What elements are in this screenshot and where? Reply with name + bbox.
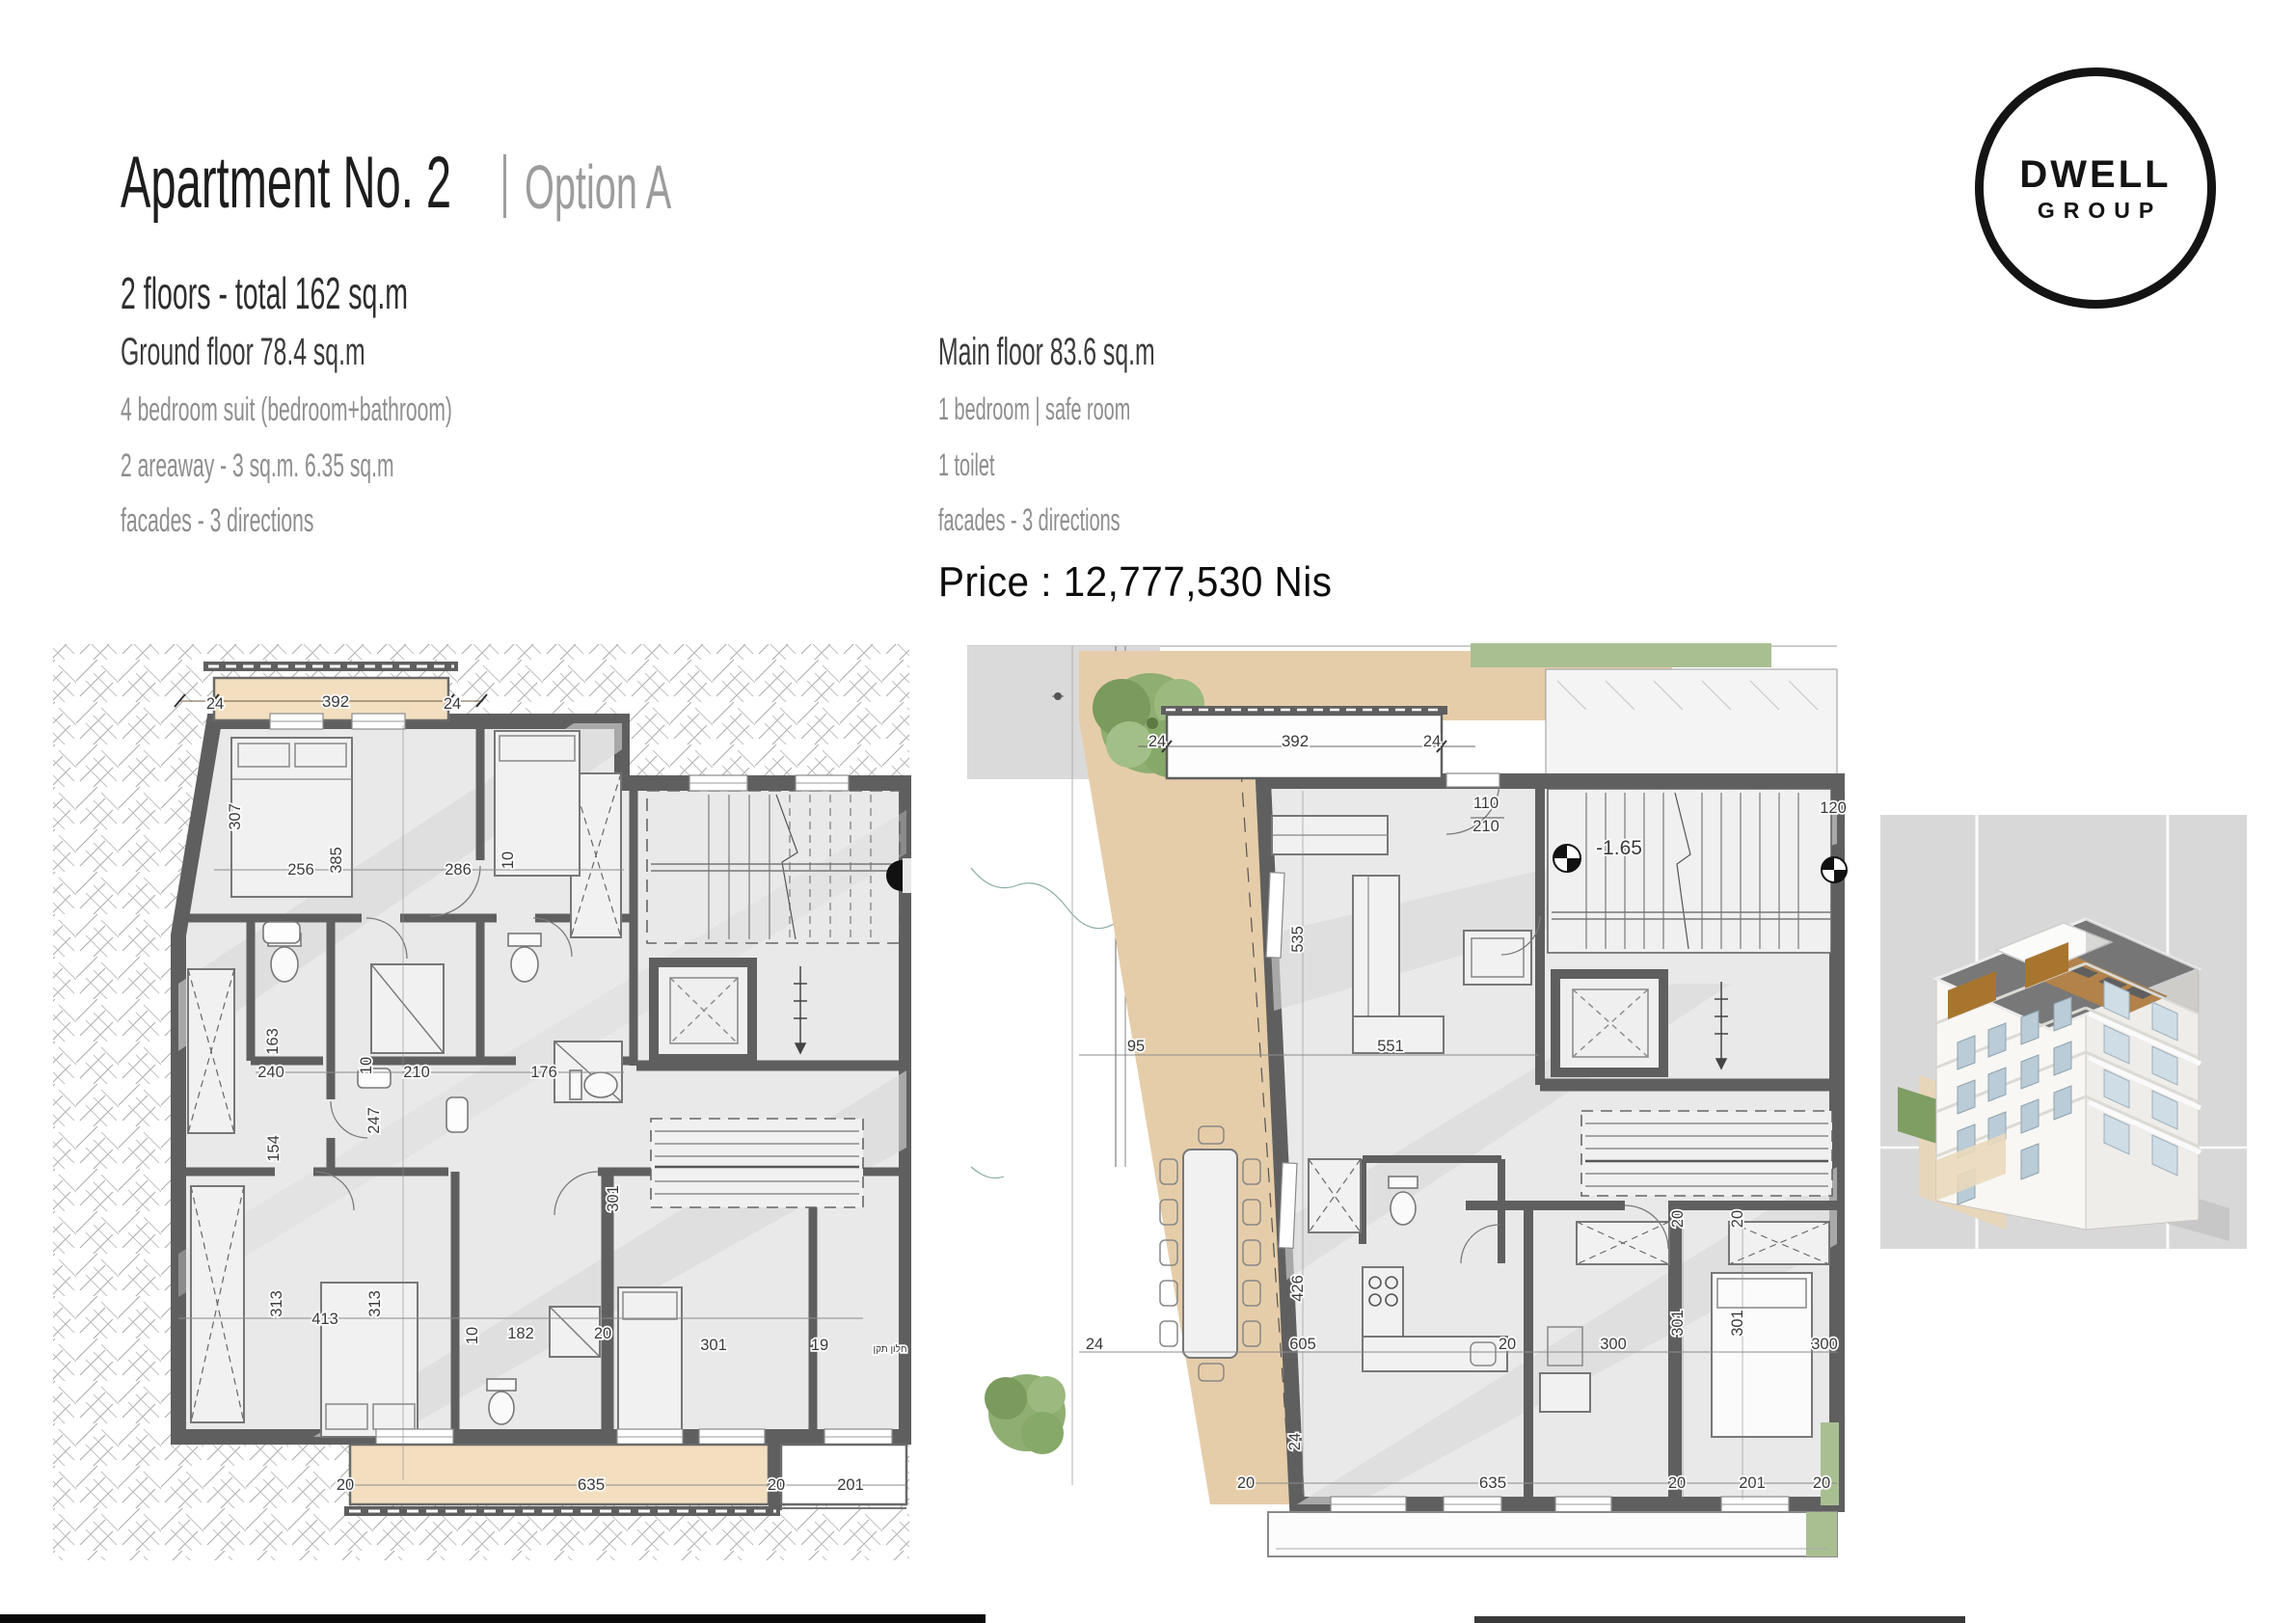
- dimension-label: 385: [328, 847, 345, 874]
- dimension-label: 551: [1377, 1038, 1404, 1055]
- dimension-label: 24: [1086, 1336, 1103, 1353]
- terrace-bottom: [1268, 1512, 1837, 1556]
- dimension-label: 120: [1820, 799, 1847, 817]
- dwell-group-logo: DWELL GROUP: [1975, 68, 2216, 309]
- dimension-label: 24: [1423, 733, 1441, 750]
- building-3d-render: [1880, 815, 2247, 1249]
- ground-floor-line: facades - 3 directions: [121, 504, 432, 537]
- footer-bar-left: [0, 1614, 986, 1623]
- tree-small: [985, 1374, 1066, 1454]
- dimension-label: 182: [507, 1325, 534, 1342]
- dimension-label: 24: [1286, 1433, 1304, 1450]
- dimension-label: -1.65: [1596, 837, 1642, 859]
- ground-floor-line: 2 areaway - 3 sq.m. 6.35 sq.m: [121, 449, 561, 482]
- level-marker: [1553, 845, 1580, 872]
- dimension-label: 605: [1289, 1336, 1316, 1353]
- dimension-label: 240: [257, 1064, 284, 1081]
- dimension-label: 110: [1473, 795, 1499, 812]
- dimension-label: 24: [1148, 733, 1166, 750]
- dimension-label: 426: [1289, 1275, 1307, 1302]
- dimension-label: 20: [1668, 1474, 1686, 1492]
- ground-floor-title: Ground floor 78.4 sq.m: [121, 333, 515, 371]
- dimension-label: 20: [1669, 1210, 1687, 1228]
- main-floor-line: 1 toilet: [938, 449, 1029, 480]
- title-divider: [503, 154, 506, 218]
- main-floor-line: 1 bedroom | safe room: [938, 393, 1248, 424]
- dimension-label: 313: [268, 1290, 285, 1317]
- dimension-label: 256: [287, 861, 314, 879]
- dimension-label: 392: [1282, 732, 1309, 750]
- dimension-label: 20: [1499, 1336, 1516, 1353]
- dimension-label: 24: [444, 695, 461, 713]
- dimension-label: 10: [358, 1057, 375, 1074]
- dimension-label: 20: [1729, 1210, 1746, 1228]
- logo-text-dwell: DWELL: [2019, 155, 2171, 194]
- dimension-label: 300: [1811, 1336, 1838, 1353]
- dimension-label: 201: [837, 1476, 864, 1494]
- dimension-label: 20: [1813, 1474, 1830, 1492]
- dimension-label: 154: [265, 1135, 283, 1162]
- dimension-label: 176: [530, 1064, 557, 1081]
- staircase-lower: [651, 1119, 863, 1207]
- brochure-page: { "header": { "title": "Apartment No. 2"…: [0, 0, 2296, 1623]
- dimension-label: 413: [311, 1311, 338, 1328]
- dimension-label: 301: [700, 1337, 727, 1354]
- dimension-label: 210: [403, 1064, 430, 1081]
- dimension-label: 20: [1237, 1474, 1255, 1492]
- grass-strip-right: [1821, 1422, 1839, 1505]
- summary-line: 2 floors - total 162 sq.m: [121, 271, 584, 315]
- dimension-label: 10: [464, 1327, 481, 1344]
- grass-strip-top: [1471, 643, 1771, 667]
- dimension-label: 307: [227, 803, 244, 830]
- dimension-label: 313: [366, 1290, 384, 1317]
- dimension-label: 635: [578, 1475, 605, 1494]
- dimension-label: 20: [594, 1325, 611, 1342]
- footer-bar-right: [1474, 1616, 1965, 1623]
- render-building: [1936, 919, 2201, 1230]
- price-line: Price : 12,777,530 Nis: [938, 561, 1366, 604]
- elevator: [1555, 974, 1663, 1072]
- main-floor-line: facades - 3 directions: [938, 504, 1231, 535]
- dimension-label: 300: [1600, 1336, 1627, 1353]
- ground-floor-line: 4 bedroom suit (bedroom+bathroom): [121, 393, 656, 426]
- staircase: [1548, 789, 1847, 953]
- apartment-title: Apartment No. 2: [121, 147, 451, 220]
- dimension-label: 19: [811, 1337, 828, 1354]
- dimension-label: 535: [1289, 926, 1307, 953]
- dimension-label: 247: [365, 1107, 383, 1134]
- dimension-label: 24: [206, 695, 224, 713]
- logo-text-group: GROUP: [2029, 200, 2162, 222]
- dimension-label: 635: [1479, 1474, 1506, 1492]
- dimension-label: 301: [1669, 1310, 1687, 1337]
- dimension-label: חלון תקן: [873, 1343, 906, 1355]
- upper-terrace: [1546, 669, 1837, 777]
- dimension-label: 301: [1729, 1310, 1746, 1337]
- dimension-label: 20: [768, 1476, 785, 1494]
- option-label: Option A: [525, 156, 762, 218]
- terrace-bottom: [344, 1439, 906, 1516]
- dimension-label: 286: [445, 861, 472, 879]
- dimension-label: 163: [264, 1028, 282, 1055]
- dimension-label: 20: [337, 1476, 354, 1494]
- dimension-label: 392: [322, 692, 349, 711]
- dimension-label: 95: [1127, 1038, 1145, 1055]
- staircase-lower: [1581, 1111, 1832, 1196]
- main-floor-plan: 2439224110210120-1.655359555142624605203…: [950, 627, 1890, 1567]
- dimension-label: 301: [605, 1185, 622, 1212]
- level-marker: [1822, 857, 1847, 882]
- dimension-label: 210: [1472, 818, 1499, 835]
- dimension-label: 201: [1739, 1474, 1766, 1492]
- elevator: [654, 962, 752, 1059]
- main-floor-title: Main floor 83.6 sq.m: [938, 333, 1287, 371]
- dimension-label: 10: [500, 852, 517, 869]
- ground-floor-plan: 3922424307256385102861632401021017624715…: [34, 617, 911, 1567]
